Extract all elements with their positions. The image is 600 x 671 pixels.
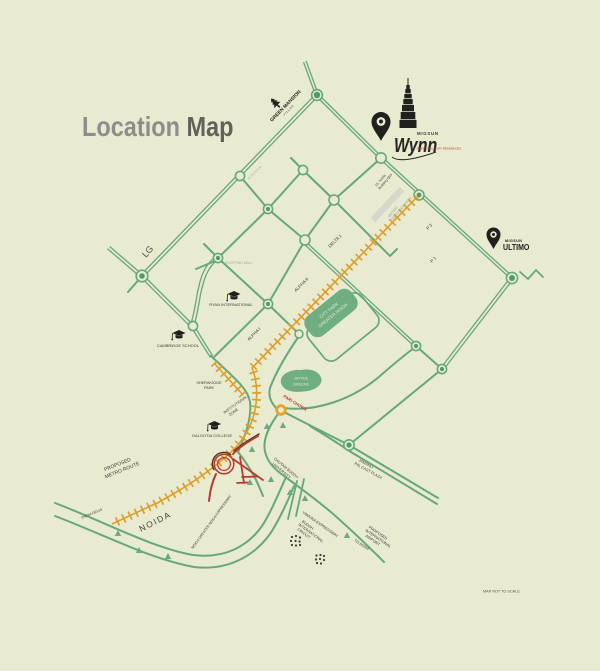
svg-text:Wynn: Wynn [394, 134, 437, 156]
svg-text:PREMIUM LUXURY RESIDENCES: PREMIUM LUXURY RESIDENCES [417, 147, 461, 151]
svg-text:GREENS: GREENS [293, 383, 310, 387]
svg-text:PARK: PARK [204, 386, 215, 390]
svg-text:JAYPEE: JAYPEE [294, 377, 309, 381]
svg-text:SHOPPING MALL: SHOPPING MALL [225, 261, 253, 265]
svg-text:SHERWOODE: SHERWOODE [196, 381, 222, 385]
svg-text:Location Map: Location Map [82, 112, 233, 142]
svg-text:MAP NOT TO SCALE: MAP NOT TO SCALE [483, 590, 520, 594]
svg-text:GALGOTIA COLLEGE: GALGOTIA COLLEGE [192, 433, 233, 438]
svg-text:ULTIMO: ULTIMO [503, 243, 530, 253]
svg-text:CAMBRIDGE SCHOOL: CAMBRIDGE SCHOOL [157, 343, 200, 348]
svg-text:RYAN INTERNATIONAL: RYAN INTERNATIONAL [209, 302, 253, 307]
